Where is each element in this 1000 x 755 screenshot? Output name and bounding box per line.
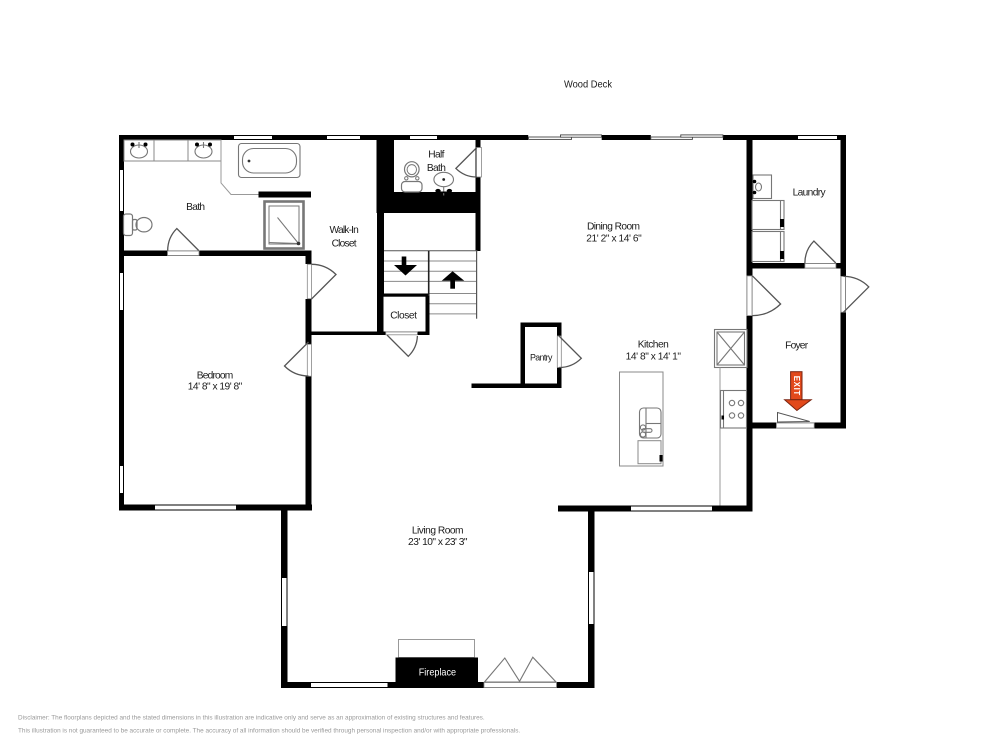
svg-text:Laundry: Laundry [793, 188, 827, 199]
svg-text:Kitchen: Kitchen [638, 340, 669, 351]
svg-text:Bath: Bath [427, 163, 446, 174]
svg-text:23' 10" x 23' 3": 23' 10" x 23' 3" [408, 537, 468, 548]
svg-text:Foyer: Foyer [785, 340, 809, 351]
svg-text:Bath: Bath [186, 202, 205, 213]
svg-text:Disclaimer: The floorplans dep: Disclaimer: The floorplans depicted and … [18, 715, 485, 722]
svg-text:Walk-In: Walk-In [330, 225, 359, 236]
svg-text:14' 8" x 14' 1": 14' 8" x 14' 1" [626, 351, 682, 362]
svg-text:14' 8" x 19' 8": 14' 8" x 19' 8" [188, 382, 243, 393]
svg-text:Fireplace: Fireplace [419, 667, 457, 678]
svg-text:Closet: Closet [332, 238, 357, 249]
svg-text:This illustration is not guara: This illustration is not guaranteed to b… [18, 728, 520, 735]
svg-text:Wood Deck: Wood Deck [564, 79, 613, 90]
svg-text:Dining Room: Dining Room [587, 221, 640, 232]
svg-text:Closet: Closet [390, 310, 417, 321]
svg-text:Half: Half [428, 150, 444, 161]
svg-text:Pantry: Pantry [530, 352, 553, 362]
svg-text:EXIT: EXIT [792, 376, 801, 396]
svg-text:Bedroom: Bedroom [197, 371, 234, 382]
svg-text:Living Room: Living Room [412, 526, 464, 537]
svg-text:21' 2" x 14' 6": 21' 2" x 14' 6" [586, 233, 642, 244]
